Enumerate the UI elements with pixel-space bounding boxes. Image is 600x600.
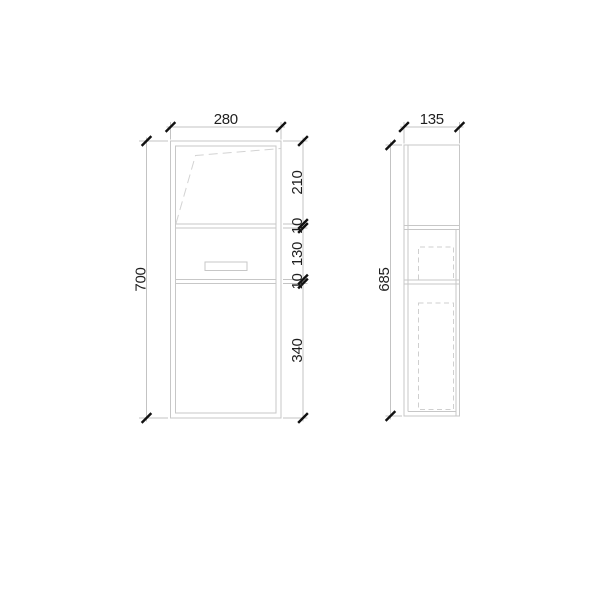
dim-label-front-height: 700 bbox=[133, 267, 150, 291]
drawer-handle bbox=[205, 262, 247, 271]
dim-label-segment-10-upper: 10 bbox=[289, 218, 306, 234]
cad-drawing: 280 700 210 10 130 10 340 1 bbox=[0, 0, 600, 600]
door-swing-indicator bbox=[176, 149, 281, 224]
front-view bbox=[171, 141, 282, 418]
hidden-lower-compartment bbox=[419, 303, 454, 410]
hidden-drawer-box bbox=[419, 247, 454, 280]
dimension-front-segments: 210 10 130 10 340 bbox=[283, 137, 308, 422]
dimension-side-height: 685 bbox=[376, 141, 402, 420]
side-view bbox=[404, 145, 460, 416]
dim-label-side-height: 685 bbox=[376, 267, 393, 291]
dimension-side-width: 135 bbox=[400, 111, 464, 144]
dim-label-side-width: 135 bbox=[420, 111, 444, 128]
dim-label-segment-10-lower: 10 bbox=[289, 273, 306, 289]
drawing-canvas: 280 700 210 10 130 10 340 1 bbox=[0, 0, 600, 600]
dimension-front-height: 700 bbox=[133, 137, 169, 422]
dim-label-segment-340: 340 bbox=[289, 338, 306, 362]
dim-label-segment-130: 130 bbox=[289, 242, 306, 266]
dim-label-segment-210: 210 bbox=[289, 170, 306, 194]
dimension-front-width: 280 bbox=[167, 111, 286, 140]
dim-label-front-width: 280 bbox=[214, 111, 238, 128]
